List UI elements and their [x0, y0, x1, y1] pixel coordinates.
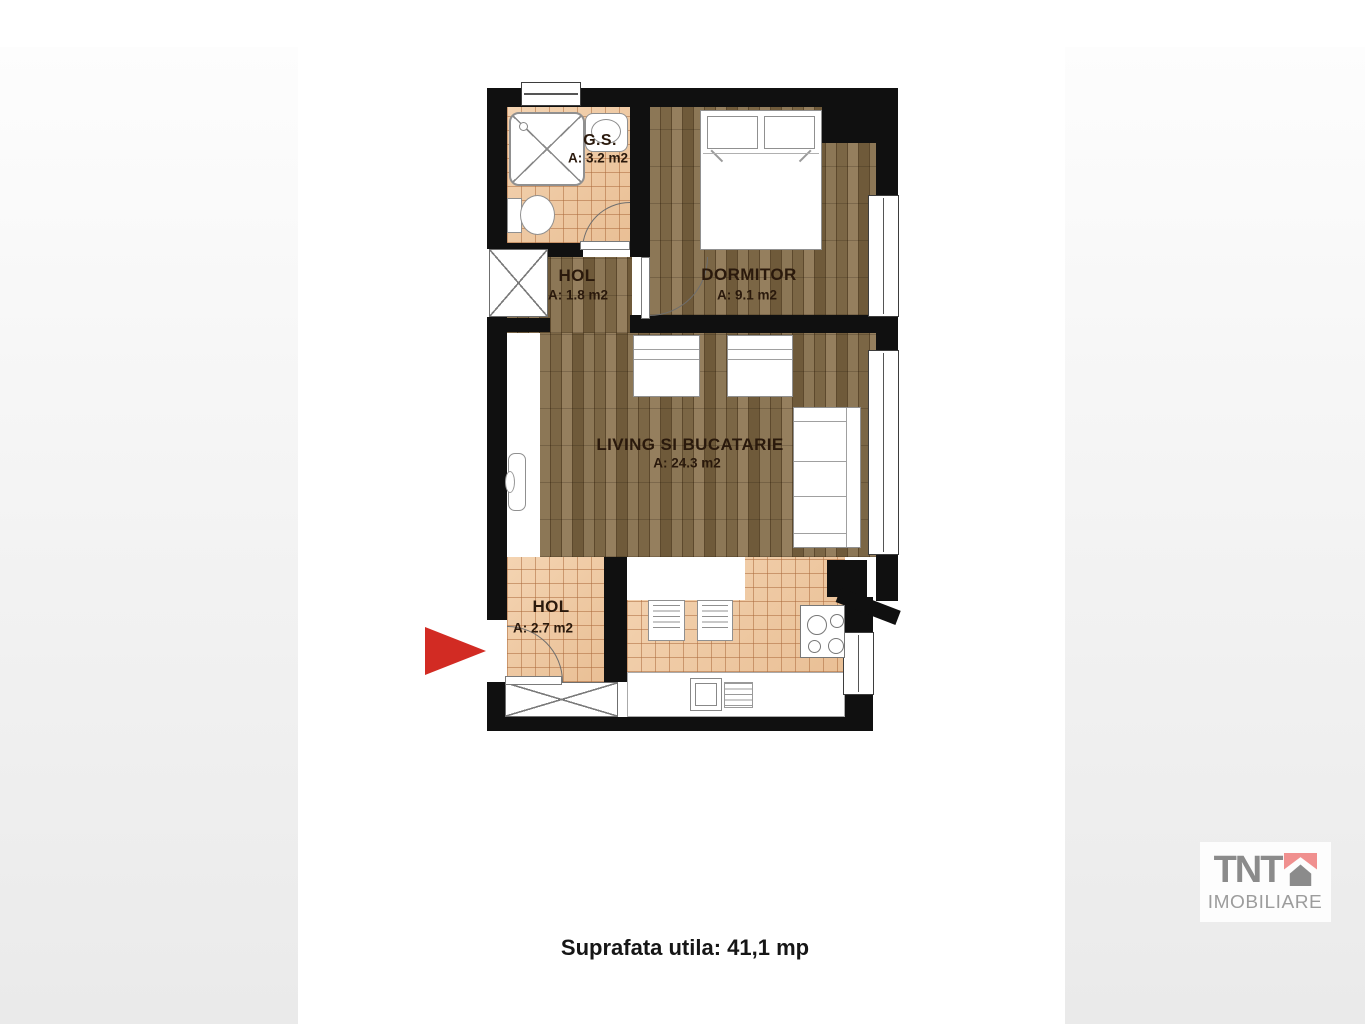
floor-plan: G.S. A: 3.2 m2 HOL A: 1.8 m2 DORMITOR A:… — [487, 84, 902, 736]
window-frame-line — [858, 635, 860, 692]
pillow — [707, 116, 758, 149]
kitchen-table-area — [627, 557, 745, 600]
chair — [648, 600, 685, 641]
sink-bowl — [695, 683, 717, 706]
kitchen-window — [843, 632, 874, 695]
blanket-fold — [711, 150, 723, 162]
logo-subtitle-text: IMOBILIARE — [1208, 892, 1323, 912]
bedroom-window — [868, 195, 899, 317]
sofa — [793, 407, 861, 548]
room-area-living: A: 24.3 m2 — [653, 456, 721, 471]
kitchen-sink — [690, 678, 722, 711]
wall-hallway-stub — [507, 318, 550, 332]
room-label-dormitor: DORMITOR — [701, 265, 796, 285]
chair — [697, 600, 733, 641]
toilet-bowl — [520, 195, 555, 235]
stove-burner — [828, 638, 844, 654]
blanket-fold — [799, 150, 811, 162]
stove-burner — [808, 640, 821, 653]
shower-head-icon — [519, 122, 528, 131]
wall-kitchen-right-lower — [845, 695, 873, 731]
room-label-gs: G.S. — [583, 132, 617, 150]
floor-plan-page: G.S. A: 3.2 m2 HOL A: 1.8 m2 DORMITOR A:… — [0, 0, 1365, 1024]
mattress-line — [703, 153, 819, 154]
logo-house-icon — [1284, 853, 1317, 891]
wall-left-upper — [487, 88, 507, 249]
dresser-lines — [728, 349, 792, 360]
wall-bedroom-living — [630, 315, 876, 333]
wall-bottom — [487, 717, 859, 731]
logo-brand-text: TNT — [1214, 853, 1282, 887]
stove — [800, 605, 845, 658]
room-area-hol1: A: 1.8 m2 — [548, 288, 608, 303]
bedroom-door — [641, 257, 650, 319]
sofa-cushion-line — [794, 496, 846, 497]
window-frame-line — [524, 93, 578, 95]
living-window — [868, 350, 899, 555]
sofa-cushion-line — [794, 533, 846, 534]
wall-right-upper — [876, 88, 898, 195]
agency-logo: TNT IMOBILIARE — [1200, 842, 1331, 922]
stove-burner — [807, 615, 827, 635]
room-area-gs: A: 3.2 m2 — [568, 151, 628, 166]
window-frame-line — [883, 198, 885, 314]
room-label-hol2: HOL — [532, 597, 569, 617]
logo-row: TNT — [1214, 853, 1318, 891]
wall-right-lower — [876, 555, 898, 601]
wall-bedroom-corner-block — [822, 107, 876, 143]
wall-left-middle — [487, 317, 507, 620]
sofa-backrest — [846, 408, 860, 547]
dresser — [633, 335, 700, 397]
window-frame-line — [883, 353, 885, 552]
sink-drainer — [724, 682, 753, 708]
closet-hallway1 — [489, 249, 548, 317]
sofa-cushion-line — [794, 461, 846, 462]
radiator-knob — [505, 471, 515, 493]
dresser-lines — [634, 349, 699, 360]
bed — [700, 110, 822, 250]
room-area-dormitor: A: 9.1 m2 — [717, 288, 777, 303]
radiator — [508, 453, 526, 511]
wall-right-middle — [876, 317, 898, 350]
chair-slats — [653, 605, 680, 629]
wall-bath-bedroom — [630, 107, 650, 257]
bathroom-door — [580, 241, 630, 250]
closet-hallway2 — [505, 682, 618, 717]
shower — [509, 112, 585, 186]
chair-slats — [702, 605, 728, 629]
room-label-living: LIVING SI BUCATARIE — [596, 435, 783, 455]
page-gutter-left — [0, 47, 298, 1024]
room-area-hol2: A: 2.7 m2 — [513, 621, 573, 636]
bathroom-window — [521, 82, 581, 106]
stove-burner — [830, 614, 844, 628]
room-label-hol1: HOL — [558, 266, 595, 286]
entrance-arrow-icon — [425, 627, 486, 675]
sofa-cushion-line — [794, 421, 846, 422]
dresser — [727, 335, 793, 397]
wall-hol-kitchen — [604, 557, 627, 682]
entrance-door — [505, 676, 562, 685]
pillow — [764, 116, 815, 149]
usable-surface-caption: Suprafata utila: 41,1 mp — [450, 935, 920, 961]
